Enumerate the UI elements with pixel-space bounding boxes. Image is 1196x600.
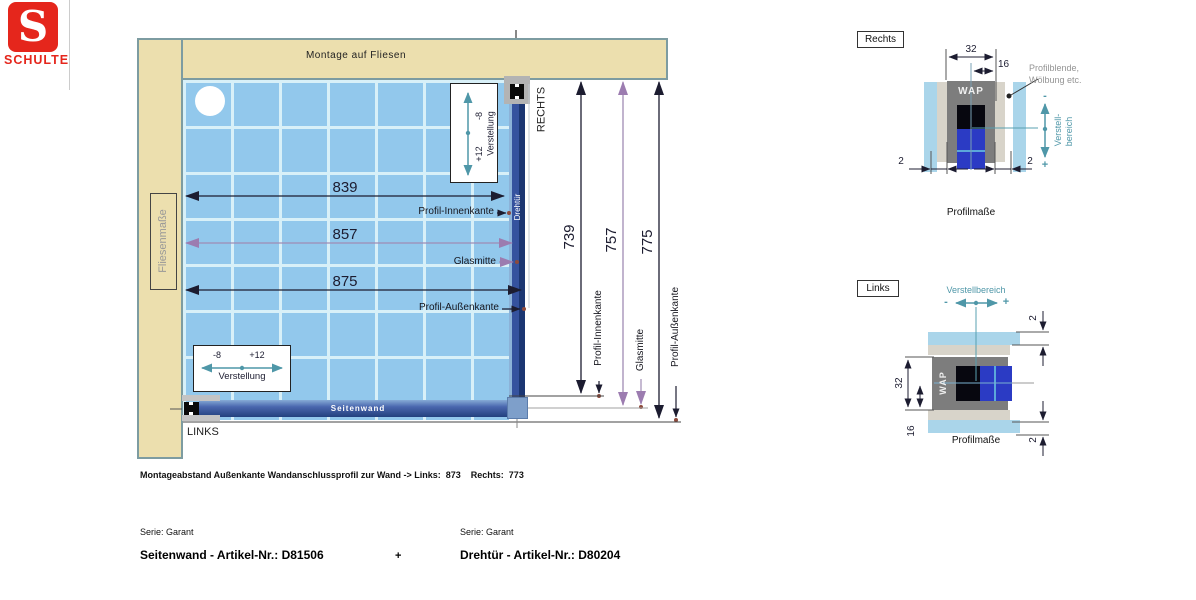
glass-blue (957, 129, 985, 169)
seitenwand-label: Seitenwand (331, 404, 385, 413)
schulte-mounting-diagram: S SCHULTE Montage auf Fliesen Fliesenmaß… (0, 0, 1196, 600)
cover-band (995, 82, 1005, 162)
detail-right-gap-left: 2 (895, 156, 907, 167)
clamp-slit (189, 412, 193, 415)
wall-corner-patch (139, 40, 181, 78)
glass-blue (980, 366, 1012, 401)
glass-highlight (994, 366, 996, 401)
shower-rose-icon (195, 86, 225, 116)
dim-875-value: 875 (315, 273, 375, 290)
detail-right-minus: - (1040, 90, 1050, 102)
verstellbereich-label-left: Verstellbereich (928, 285, 1024, 295)
dim-857-value: 857 (315, 226, 375, 243)
dim-857-label: Glasmitte (428, 256, 496, 267)
drehtuer-label: Drehtür (512, 184, 522, 230)
side-left-label: LINKS (187, 426, 235, 438)
adjust-top-plus: +12 (474, 142, 484, 166)
brand-name: SCHULTE (4, 53, 62, 67)
dim-875-label: Profil-Außenkante (372, 302, 499, 313)
serie-right: Serie: Garant (460, 527, 610, 537)
detail-right-title-text: Rechts (865, 34, 896, 45)
detail-right-gap-right: 2 (1024, 156, 1036, 167)
clamp-slit (515, 96, 519, 99)
bracket-plate (182, 415, 220, 421)
detail-left-caption: Profilmaße (943, 435, 1009, 446)
adjust-top-minus: -8 (474, 106, 484, 126)
seitenwand-bar: Seitenwand (199, 400, 517, 417)
article-right: Drehtür - Artikel-Nr.: D80204 (460, 548, 730, 562)
dim-739-value: 739 (561, 220, 577, 254)
detail-right-plus: + (1040, 159, 1050, 171)
cover-band (937, 82, 947, 162)
article-joiner: + (395, 550, 407, 562)
drehtuer-profile (509, 80, 525, 415)
wap-profile-bottom (932, 401, 1008, 410)
dim-839-value: 839 (315, 179, 375, 196)
brand-logo-icon: S (8, 2, 58, 52)
adjust-top-label: Verstellung (485, 99, 496, 169)
adjust-bottom-minus: -8 (206, 350, 228, 360)
corner-junction (507, 397, 528, 419)
detail-left-dim-32: 32 (893, 372, 905, 394)
glass-highlight (957, 150, 985, 152)
adjust-bottom-plus: +12 (243, 350, 271, 360)
glass-dark (956, 366, 980, 401)
detail-right-dim-32: 32 (960, 44, 982, 55)
detail-left-dim-16: 16 (905, 420, 917, 442)
bracket-plate (182, 395, 220, 401)
profilblende-note-line2: Wölbung etc. (1029, 75, 1103, 85)
fliesenmasse-label: Fliesenmaße (156, 198, 170, 284)
dim-775-value: 775 (639, 225, 655, 259)
detail-left-gap-top: 2 (1027, 311, 1039, 325)
article-left: Seitenwand - Artikel-Nr.: D81506 (140, 548, 410, 562)
dim-739-label: Profil-Innenkante (592, 278, 604, 378)
detail-left-wap-label: WAP (937, 364, 949, 402)
glass-band (924, 82, 937, 172)
profilblende-note-line1: Profilblende, (1029, 63, 1103, 73)
detail-right-dim-16: 16 (998, 59, 1018, 70)
glass-dark (957, 105, 985, 129)
dim-775-label: Profil-Außenkante (669, 274, 681, 380)
brand-initial: S (18, 6, 48, 48)
detail-left-title-text: Links (866, 283, 889, 294)
detail-right-wap-label: WAP (947, 86, 995, 97)
logo-separator (69, 0, 70, 90)
detail-left-plus: + (1001, 296, 1011, 308)
detail-left-gap-bottom: 2 (1027, 433, 1039, 447)
glass-band (928, 420, 1020, 433)
dim-757-label: Glasmitte (634, 322, 646, 378)
mounting-distance-note: Montageabstand Außenkante Wandanschlussp… (140, 470, 740, 480)
detail-right-title: Rechts (857, 31, 904, 48)
cover-band (928, 345, 1010, 355)
verstellbereich-right-text: Verstell- bereich (1053, 114, 1075, 147)
dim-839-label: Profil-Innenkante (378, 206, 494, 217)
detail-right-caption: Profilmaße (938, 207, 1004, 218)
detail-left-title: Links (857, 280, 899, 297)
diagram-title: Montage auf Fliesen (256, 50, 456, 61)
glass-band (928, 332, 1020, 345)
adjust-bottom-label: Verstellung (204, 371, 280, 382)
cover-band (928, 410, 1010, 420)
clamp-slit (189, 402, 193, 405)
clamp-slit (515, 84, 519, 87)
detail-left-minus: - (941, 296, 951, 308)
serie-left: Serie: Garant (140, 527, 290, 537)
dim-757-value: 757 (603, 223, 619, 257)
verstellbereich-label-right: Verstell- bereich (1052, 102, 1076, 158)
side-right-label: RECHTS (535, 83, 548, 137)
